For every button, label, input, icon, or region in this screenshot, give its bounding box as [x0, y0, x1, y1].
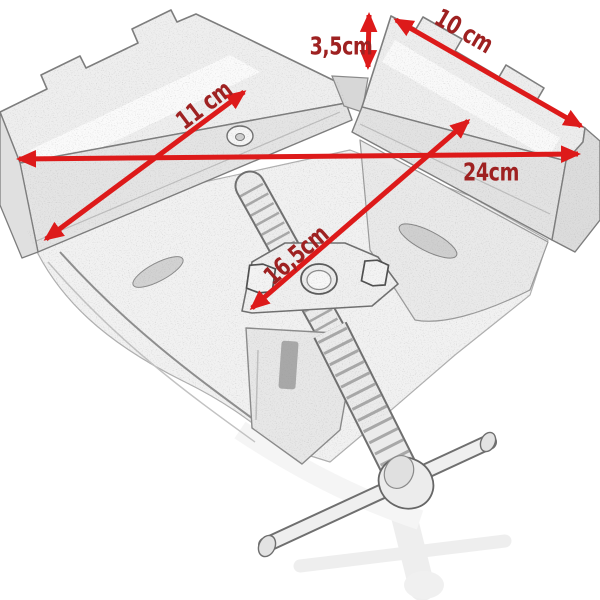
dim-label-jaw-height: 3,5cm: [310, 34, 373, 59]
corner-clamp-illustration: [0, 0, 600, 600]
dim-label-overall-width: 24cm: [463, 160, 519, 185]
product-image: 3,5cm 10 cm 11 cm 24cm 16,5cm: [0, 0, 600, 600]
